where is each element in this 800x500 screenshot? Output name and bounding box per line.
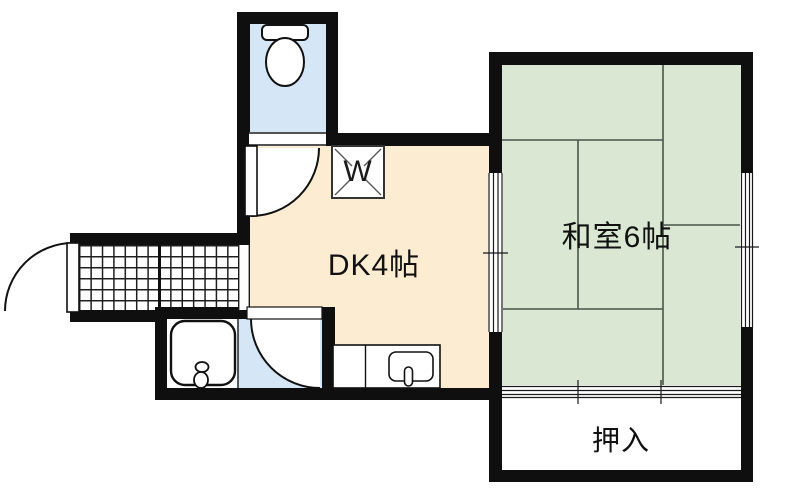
floor-plan: DK4帖 和室6帖 押入 W <box>0 0 800 500</box>
washitsu-room-label: 和室6帖 <box>517 212 717 256</box>
toilet-doorway <box>249 132 326 146</box>
toilet-door-swing <box>245 146 319 216</box>
window-east <box>735 173 759 327</box>
sliding-door-closet <box>502 380 741 404</box>
washing-machine-label: W <box>332 146 384 198</box>
genkan-step <box>238 245 250 310</box>
bathtub-icon <box>171 321 235 388</box>
sliding-door-dk-washitsu <box>483 173 508 332</box>
toilet-icon <box>262 25 308 86</box>
oshiire-closet-label: 押入 <box>521 419 721 459</box>
entrance-door-swing <box>5 243 79 312</box>
dk-room-label: DK4帖 <box>279 240 469 284</box>
kitchen-sink-icon <box>333 345 440 388</box>
bathroom-door-swing <box>247 307 322 388</box>
